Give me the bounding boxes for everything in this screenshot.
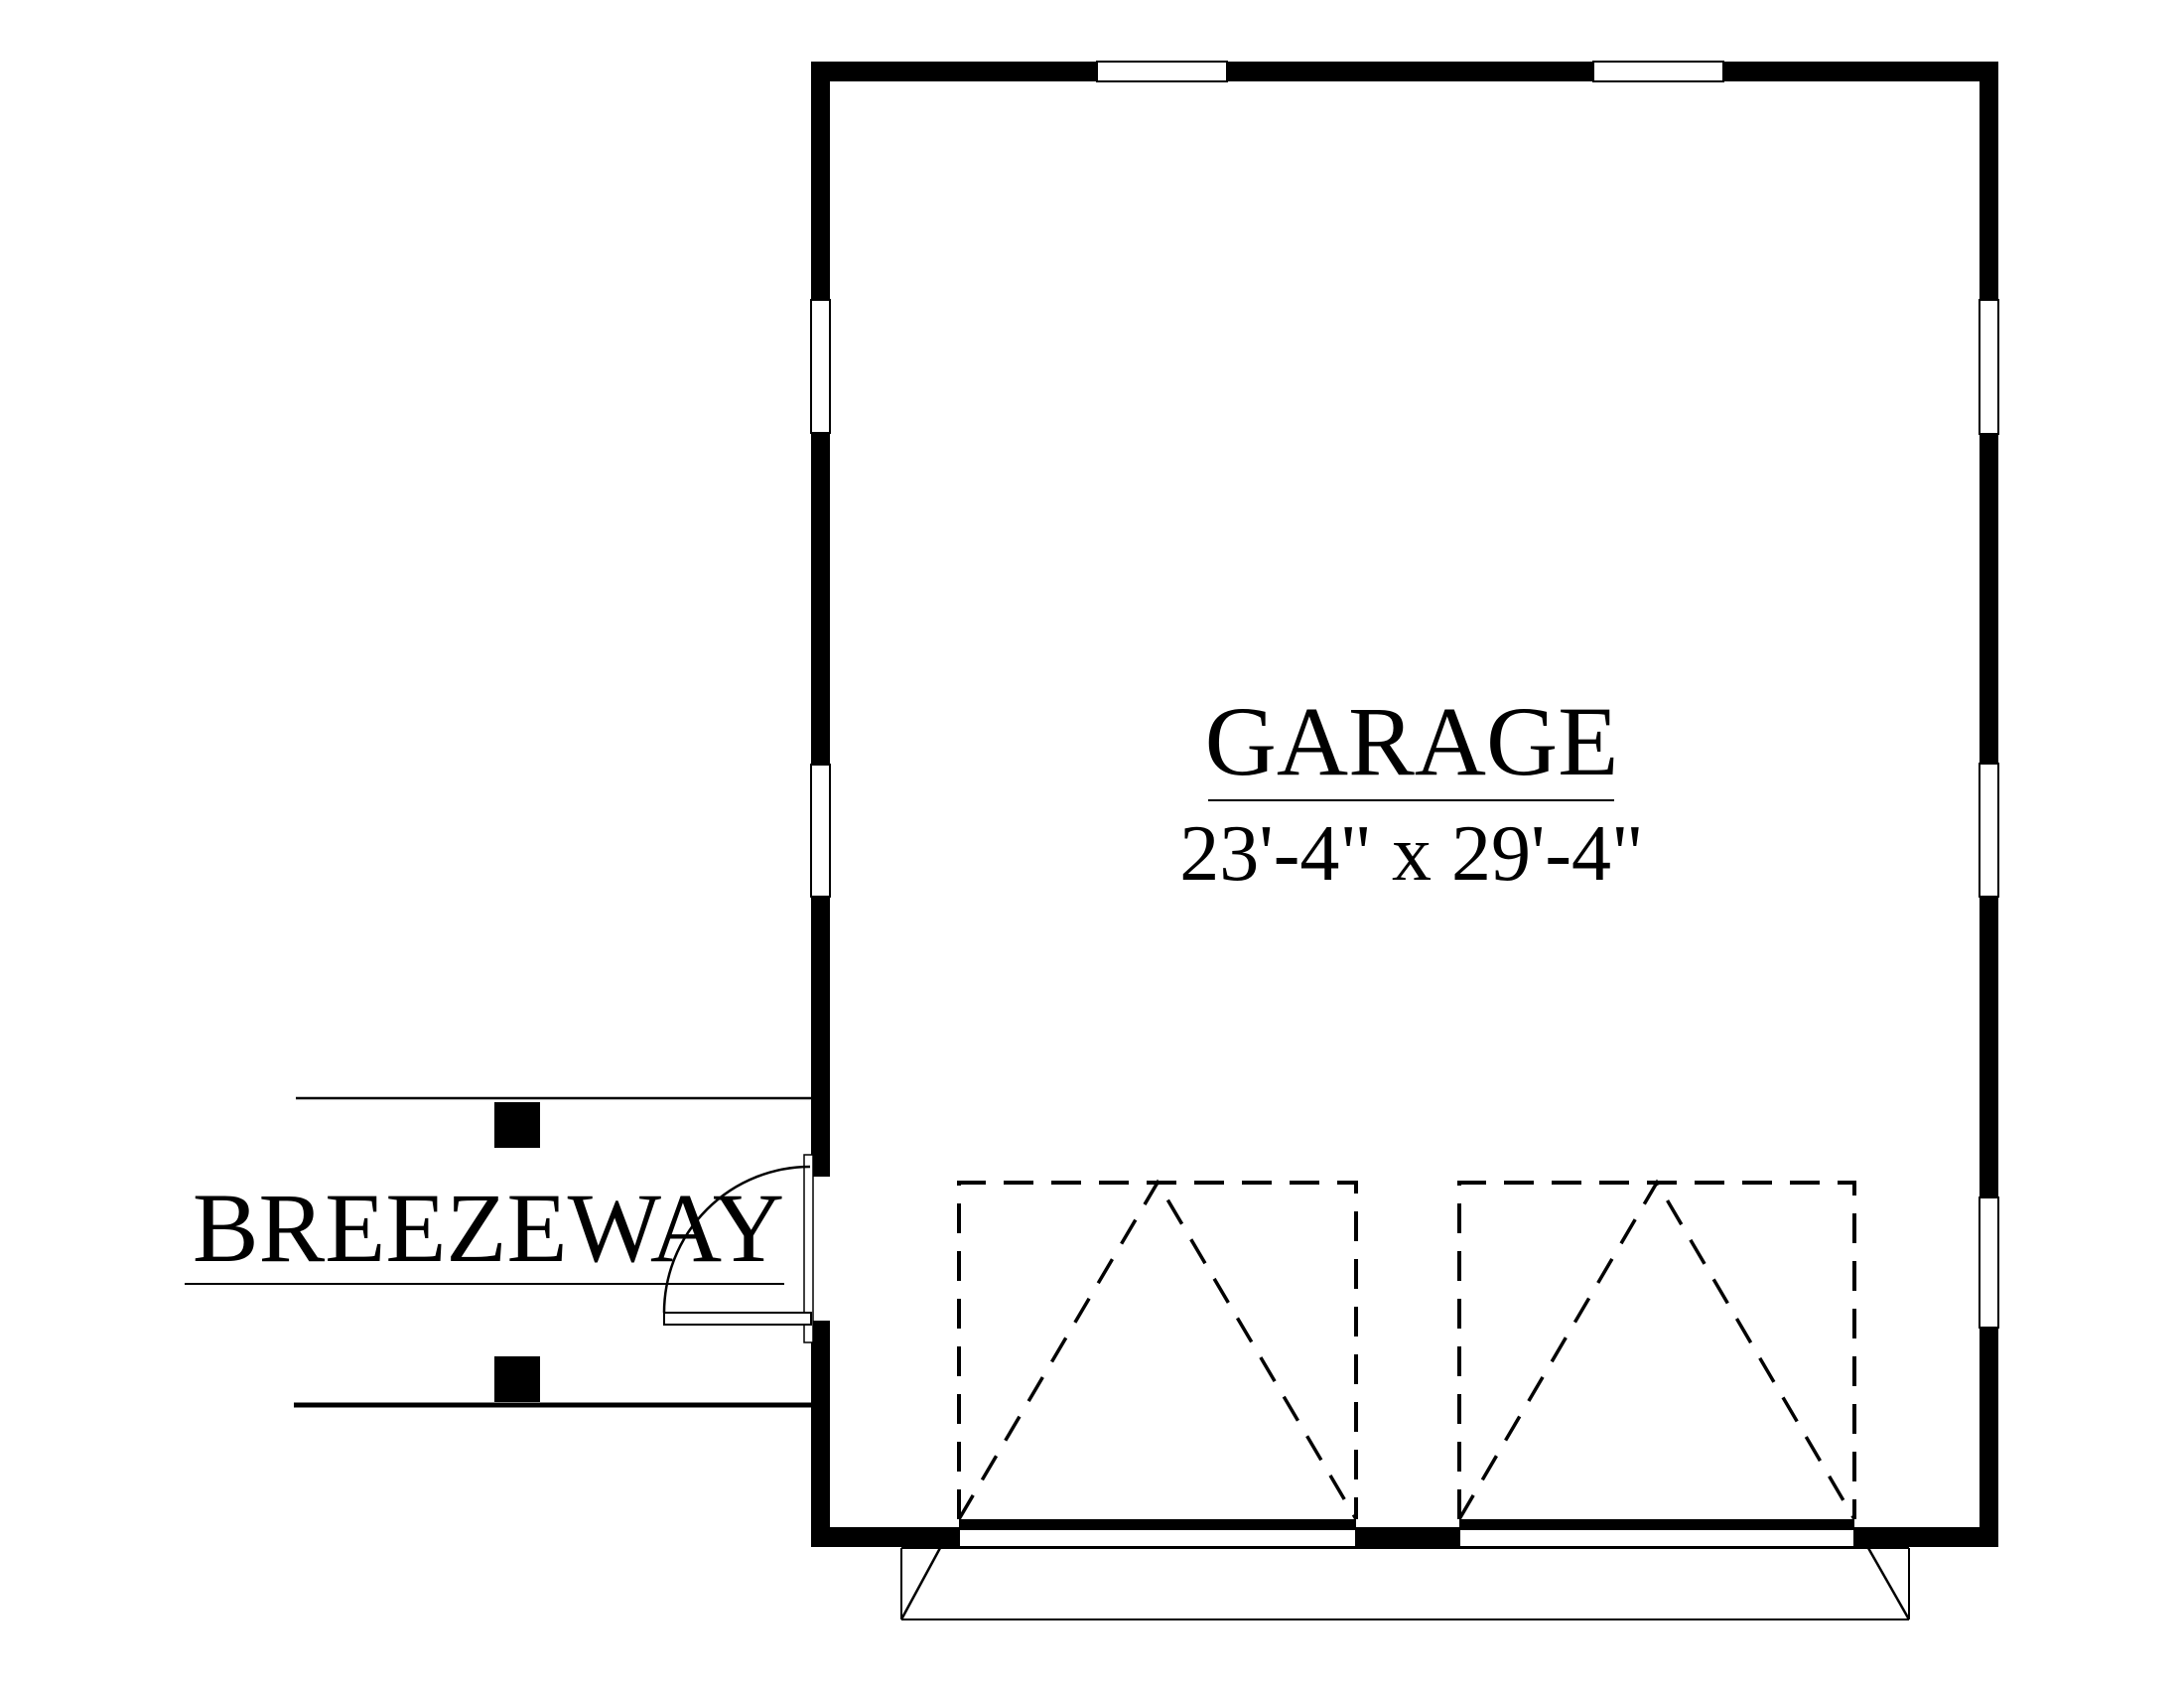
window [1979, 764, 1998, 897]
wall-bottom-segment [1356, 1527, 1459, 1547]
breezeway-label: BREEZEWAY [193, 1173, 784, 1283]
window [811, 765, 830, 897]
wall-bottom-segment [811, 1527, 959, 1547]
breezeway-post [494, 1102, 540, 1148]
wall-bottom-segment [1854, 1527, 1998, 1547]
wall-left-segment [811, 81, 830, 300]
wall-right-segment [1979, 81, 1998, 300]
garage-door-threshold [1459, 1529, 1854, 1547]
floor-plan: GARAGE 23'-4" x 29'-4" BREEZEWAY [0, 0, 2184, 1688]
garage-label: GARAGE [1205, 686, 1619, 796]
wall-left-segment [811, 1321, 830, 1527]
wall-left-segment [811, 433, 830, 765]
breezeway-post [494, 1356, 540, 1402]
garage-door-threshold [959, 1529, 1356, 1547]
window [1593, 62, 1723, 81]
window [1979, 300, 1998, 434]
window [811, 300, 830, 433]
wall-right-segment [1979, 1328, 1998, 1527]
wall-left-segment [811, 897, 830, 1177]
garage-door-slab [959, 1519, 1356, 1529]
wall-right-segment [1979, 434, 1998, 764]
garage-door-slab [1459, 1519, 1854, 1529]
paper-background [0, 0, 2184, 1688]
window [1979, 1197, 1998, 1328]
garage-dimensions: 23'-4" x 29'-4" [1179, 810, 1643, 898]
wall-right-segment [1979, 897, 1998, 1197]
window [1097, 62, 1227, 81]
wall-top [811, 62, 1998, 81]
door-leaf [664, 1313, 811, 1325]
